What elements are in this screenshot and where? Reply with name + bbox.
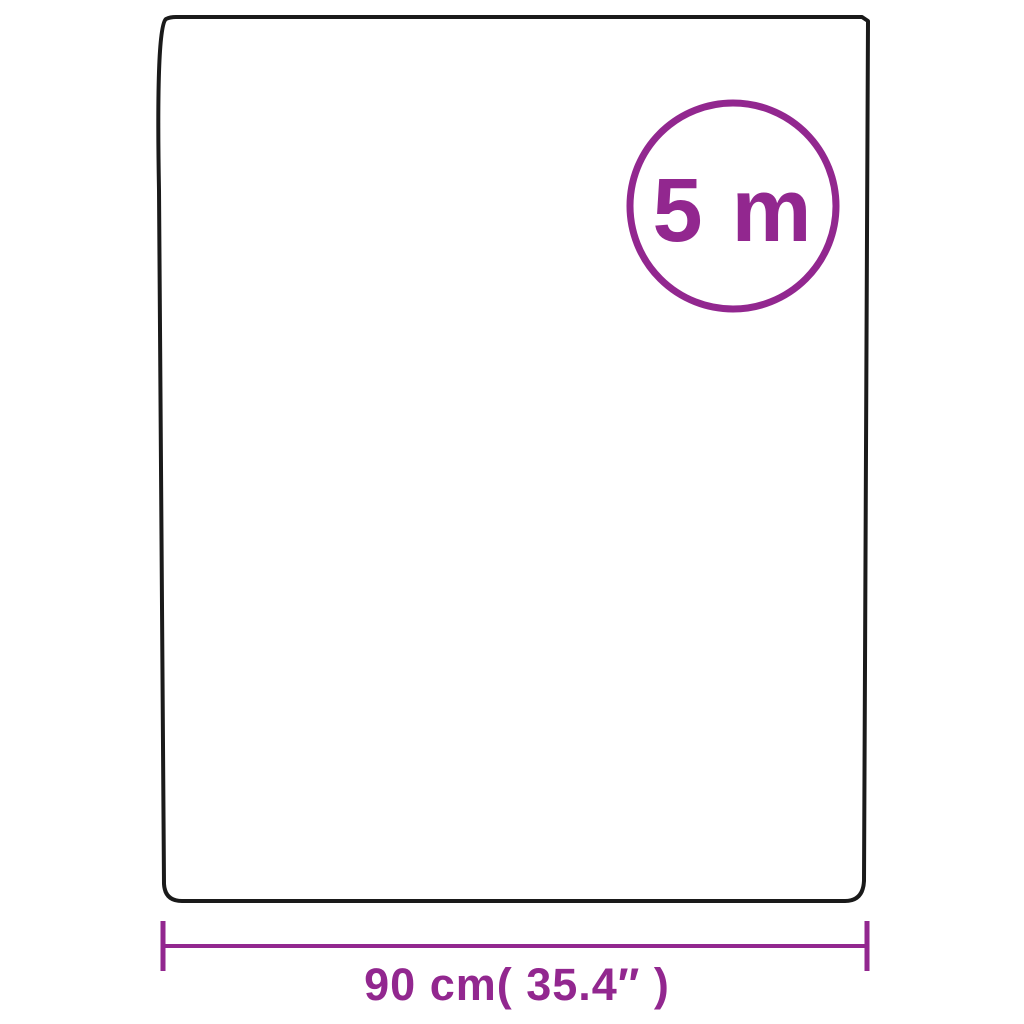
width-dimension-label: 90 cm( 35.4″ ) <box>364 959 670 1010</box>
diagram-canvas: 5 m 90 cm( 35.4″ ) <box>0 0 1024 1024</box>
product-dimension-diagram: 5 m 90 cm( 35.4″ ) <box>0 0 1024 1024</box>
length-badge-label: 5 m <box>652 161 813 261</box>
